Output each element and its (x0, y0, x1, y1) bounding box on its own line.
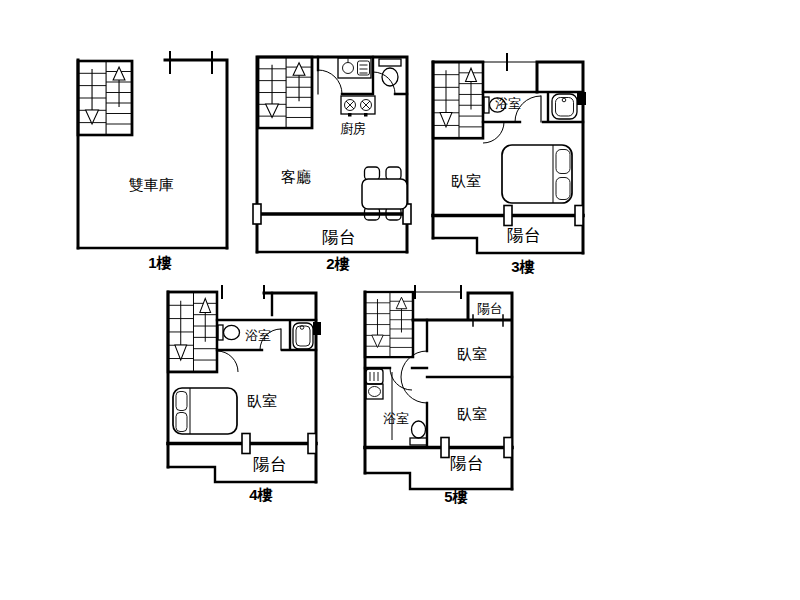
room-label-bedroom-b: 臥室 (457, 405, 487, 422)
floor-1-caption: 1樓 (148, 254, 171, 271)
room-label-balcony: 陽台 (253, 455, 287, 474)
floor-5-caption: 5樓 (444, 488, 467, 505)
room-label-balcony: 陽台 (322, 228, 356, 247)
floor-2-plan: 客廳 廚房 陽台 2樓 (253, 57, 411, 272)
floor-1-garage-opening-ticks (170, 52, 212, 73)
room-label-bedroom: 臥室 (451, 172, 481, 189)
staircase-icon (168, 292, 217, 372)
balcony-door-jamb (308, 434, 316, 454)
room-label-kitchen: 廚房 (340, 121, 366, 136)
floor-4-caption: 4樓 (249, 486, 272, 503)
balcony-door-jamb (441, 438, 449, 458)
balcony-door-jamb (575, 206, 583, 226)
balcony-door-jamb (253, 204, 261, 224)
toilet-icon (410, 421, 427, 445)
toilet-icon (379, 59, 401, 86)
room-label-bedroom: 臥室 (247, 392, 277, 409)
bathtub-icon (293, 323, 313, 349)
floor-3-caption: 3樓 (511, 258, 534, 275)
bathtub-icon (552, 94, 577, 119)
room-label-bathroom: 浴室 (245, 328, 271, 343)
room-label-bathroom: 浴室 (495, 96, 521, 111)
floor-4-opening-ticks (222, 286, 264, 298)
room-label-bathroom: 浴室 (383, 411, 409, 426)
staircase-icon (433, 62, 483, 138)
water-heater-icon (313, 322, 321, 335)
floor-2-caption: 2樓 (326, 255, 349, 272)
utility-counter-icon (366, 369, 383, 399)
bedroom-door-swing (217, 351, 238, 372)
double-bed-icon (173, 388, 237, 434)
bedroom-a-door-swing (401, 351, 427, 377)
bedroom-b-door-swing (401, 377, 427, 403)
floor-5-inner-walls (365, 320, 512, 489)
double-bed-icon (502, 145, 572, 203)
toilet-icon (218, 325, 240, 340)
balcony-door-jamb (504, 438, 512, 458)
gas-stove-icon (341, 96, 375, 117)
floor-4-plan: 浴室 臥室 陽台 4樓 (168, 286, 321, 503)
balcony-door-jamb (242, 434, 250, 454)
room-label-bedroom-a: 臥室 (457, 345, 487, 362)
floor-2-inner-walls (257, 57, 407, 252)
floor-5-outer-walls (365, 292, 512, 489)
staircase-icon (258, 57, 312, 128)
floor-plan-drawing: 雙車庫 1樓 (0, 0, 800, 600)
room-label-living: 客廳 (281, 168, 311, 185)
floor-3-plan: 浴室 臥室 陽台 3樓 (433, 54, 586, 275)
balcony-door-jamb (504, 206, 512, 226)
staircase-icon (78, 61, 132, 135)
room-label-balcony-lower: 陽台 (450, 454, 484, 473)
staircase-icon (365, 292, 413, 357)
floor-plan-image: 雙車庫 1樓 (0, 0, 800, 600)
room-label-garage: 雙車庫 (129, 176, 174, 193)
floor-2-outer-walls (257, 57, 407, 252)
floor-1-plan: 雙車庫 1樓 (78, 52, 227, 271)
floor-5-plan: 陽台 臥室 臥室 浴室 陽台 5樓 (365, 286, 512, 505)
water-heater-icon (577, 92, 586, 105)
room-label-balcony: 陽台 (507, 226, 541, 245)
dining-table-set-icon (362, 167, 407, 220)
kitchen-sink-icon (338, 58, 371, 78)
floor-1-walls (78, 60, 227, 248)
bedroom-door-swing (483, 122, 504, 143)
room-label-balcony-upper: 陽台 (477, 301, 503, 316)
